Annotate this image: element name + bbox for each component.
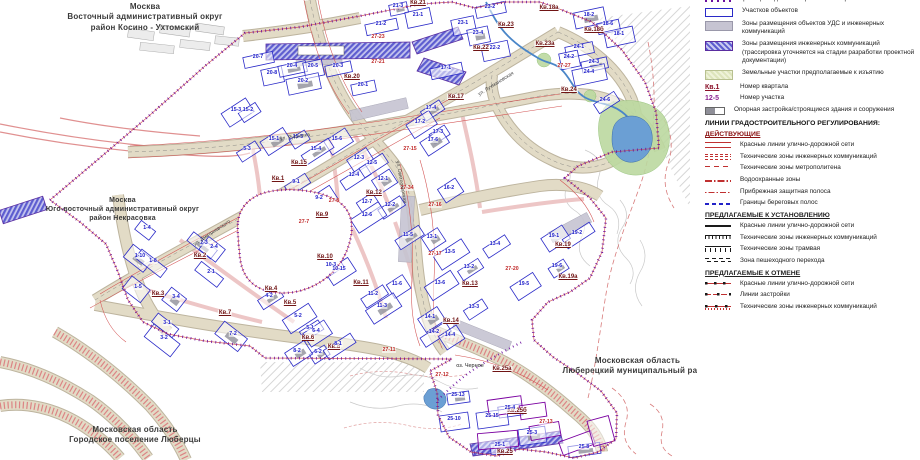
parcel-label: 12-2 [384, 202, 395, 208]
parcel-label: 8-1 [334, 341, 343, 347]
legend-item: Технические зоны инженерных коммуникаций [705, 153, 916, 162]
legend-swatch [705, 154, 731, 160]
parcel-label: 21-3 [392, 3, 403, 9]
legend-swatch [705, 235, 731, 241]
street-label: ул. Лухмановская [477, 71, 515, 98]
legend: Границы подготовки проекта планировки Уч… [697, 0, 920, 460]
legend-item-label: Границы подготовки проекта планировки [740, 0, 861, 4]
legend-section-title: ДЕЙСТВУЮЩИЕ [705, 131, 916, 138]
parcel-label: 25-15 [485, 413, 499, 419]
legend-item-label: Опорная застройка/строящиеся здания и со… [734, 106, 894, 115]
parcel-label: 14-2 [428, 329, 439, 335]
quarter-label: Кв.10 [316, 254, 334, 260]
quarter-label: Кв.22 [472, 45, 490, 51]
parcel-label: 13-5 [444, 249, 455, 255]
parcel-label: 7-2 [229, 331, 238, 337]
parcel-label: 15-2 [242, 107, 253, 113]
legend-item-label: Красные линии улично-дорожной сети [740, 141, 854, 150]
legend-swatch [705, 70, 733, 80]
legend-swatch [705, 225, 731, 227]
legend-section-active: ДЕЙСТВУЮЩИЕ Красные линии улично-дорожно… [705, 131, 916, 208]
quarter-label: Кв.17 [447, 94, 465, 100]
parcel-label: 27-17 [428, 251, 442, 257]
parcel-label: 11-2 [367, 291, 378, 297]
parcel-label: 27-27 [557, 63, 571, 69]
legend-item-label: Зоны размещения объектов УДС и инженерны… [742, 20, 916, 37]
legend-item: Красные линии улично-дорожной сети [705, 280, 916, 289]
parcel-label: 5-2 [294, 313, 303, 319]
parcel-label: 23-2 [484, 4, 495, 10]
parcel-label: 20-8 [266, 70, 277, 76]
parcel-label: 1-10 [134, 253, 145, 259]
parcel-label: 25-8 [578, 444, 589, 450]
legend-item: Красные линии улично-дорожной сети [705, 141, 916, 150]
parcel-label: 27-12 [435, 372, 449, 378]
legend-item: Участков объектов [705, 7, 916, 17]
parcel-label: 10-15 [332, 266, 346, 272]
quarter-label: Кв.25 [496, 449, 514, 455]
parcel-label: 6-2 [314, 349, 323, 355]
legend-item: Водоохранные зоны [705, 176, 916, 185]
legend-section-cancel: ПРЕДЛАГАЕМЫЕ К ОТМЕНЕ Красные линии улич… [705, 270, 916, 312]
parcel-label: 24-4 [583, 69, 594, 75]
parcel-label: 24-1 [573, 44, 584, 50]
legend-swatch: 12-5 [705, 95, 731, 102]
parcel-label: 27-7 [298, 219, 309, 225]
parcel-label: 20-2 [297, 78, 308, 84]
parcel-label: 27-21 [371, 59, 385, 65]
parcel-label: 18-2 [583, 12, 594, 18]
street-label: ул. Рудневка [280, 132, 310, 142]
parcel-label: 15-6 [331, 136, 342, 142]
parcel-label: 16-2 [443, 185, 454, 191]
parcel-label: 13-3 [468, 304, 479, 310]
parcel-label: 3-2 [160, 335, 169, 341]
parcel-label: 20-5 [307, 63, 318, 69]
map-labels: Москва Восточный административный округ … [0, 0, 700, 460]
parcel-label: 13-6 [434, 280, 445, 286]
parcel-label: 27-23 [371, 34, 385, 40]
legend-item-label: Зона пешеходного перехода [740, 257, 825, 266]
legend-section-proposed: ПРЕДЛАГАЕМЫЕ К УСТАНОВЛЕНИЮ Красные лини… [705, 212, 916, 266]
parcel-label: 17-3 [432, 129, 443, 135]
quarter-label: Кв.23а [534, 41, 555, 47]
parcel-label: 1-5 [134, 284, 143, 290]
parcel-label: 27-16 [428, 202, 442, 208]
quarter-label: Кв.18а [538, 5, 559, 11]
parcel-label: 17-6 [427, 137, 438, 143]
quarter-label: Кв.13 [461, 281, 479, 287]
street-label: ул. Святоозерская [394, 160, 407, 203]
parcel-label: 25-3 [526, 430, 537, 436]
parcel-label: 17-1 [440, 65, 451, 71]
quarter-label: Кв.21 [409, 0, 427, 6]
quarter-label: Кв.14 [442, 318, 460, 324]
parcel-label: 15-1 [268, 136, 279, 142]
parcel-label: 9-2 [315, 195, 324, 201]
parcel-label: 5-3 [243, 146, 252, 152]
region-label-moscow-east: Москва Восточный административный округ … [25, 2, 265, 33]
quarter-label: Кв.4 [264, 286, 278, 292]
parcel-label: 4-2 [265, 293, 274, 299]
parcel-label: 27-15 [403, 146, 417, 152]
parcel-label: 15-3 [230, 107, 241, 113]
parcel-label: 27-13 [539, 419, 553, 425]
parcel-label: 12-3 [353, 155, 364, 161]
legend-top-items: Границы подготовки проекта планировки Уч… [705, 0, 916, 115]
parcel-label: 12-1 [377, 176, 388, 182]
parcel-label: 21-1 [412, 12, 423, 18]
legend-item-label: Участков объектов [742, 7, 798, 16]
parcel-label: 27-8 [328, 198, 339, 204]
quarter-label: Кв.15 [290, 160, 308, 166]
quarter-label: Кв.19 [554, 242, 572, 248]
parcel-label: 20-3 [332, 63, 343, 69]
planning-map-page: Москва Восточный административный округ … [0, 0, 920, 460]
legend-item: Технические зоны инженерных коммуникаций [705, 303, 916, 312]
quarter-label: Кв.12 [365, 190, 383, 196]
parcel-label: 11-6 [391, 281, 402, 287]
parcel-label: 18-1 [613, 31, 624, 37]
legend-swatch [705, 41, 733, 51]
parcel-label: 25-13 [451, 392, 465, 398]
quarter-label: Кв.23 [497, 22, 515, 28]
quarter-label: Кв.19а [557, 274, 578, 280]
region-label-moscow-southeast: Москва Юго-восточный административный ок… [30, 196, 215, 223]
parcel-label: 2-4 [210, 244, 219, 250]
quarter-label: Кв.11 [352, 280, 369, 286]
parcel-label: 9-1 [292, 179, 301, 185]
parcel-label: 22-2 [489, 45, 500, 51]
legend-swatch [705, 180, 731, 182]
parcel-label: 19-2 [571, 230, 582, 236]
legend-item-label: Красные линии улично-дорожной сети [740, 280, 854, 289]
legend-item: Красные линии улично-дорожной сети [705, 222, 916, 231]
quarter-label: Кв.6 [301, 335, 315, 341]
parcel-label: 8-2 [293, 348, 302, 354]
quarter-label: Кв.24 [560, 87, 578, 93]
parcel-label: 3-1 [163, 320, 172, 326]
legend-item: Технические зоны трамвая [705, 245, 916, 254]
parcel-label: 25-10 [447, 416, 461, 422]
parcel-label: 21-2 [375, 21, 386, 27]
parcel-label: 19-5 [518, 281, 529, 287]
parcel-label: 14-4 [444, 332, 455, 338]
legend-item: Границы береговых полос [705, 199, 916, 208]
legend-swatch [705, 8, 733, 17]
parcel-label: 1-4 [143, 225, 152, 231]
parcel-label: 17-2 [414, 119, 425, 125]
parcel-label: 17-4 [425, 105, 436, 111]
legend-item: Кв.1 Номер квартала [705, 83, 916, 92]
parcel-label: 12-6 [361, 212, 372, 218]
quarter-label: Кв.25а [491, 366, 512, 372]
legend-item: Технические зоны инженерных коммуникаций [705, 234, 916, 243]
parcel-label: 15-4 [310, 146, 321, 152]
legend-swatch [705, 192, 731, 194]
legend-item-label: Границы береговых полос [740, 199, 818, 208]
legend-swatch [705, 281, 731, 286]
legend-item-label: Водоохранные зоны [740, 176, 800, 185]
parcel-label: 20-1 [357, 82, 368, 88]
parcel-label: 20-7 [252, 54, 263, 60]
quarter-label: Кв.7 [218, 310, 232, 316]
legend-swatch [705, 203, 731, 205]
legend-item: Опорная застройка/строящиеся здания и со… [705, 106, 916, 115]
legend-item: Технические зоны метрополитена [705, 164, 916, 173]
legend-swatch [705, 142, 731, 148]
legend-item-label: Номер квартала [740, 83, 788, 92]
parcel-label: 12-7 [361, 199, 372, 205]
parcel-label: 25-4 [504, 405, 515, 411]
parcel-label: 25-1 [494, 442, 505, 448]
parcel-label: 24-2 [563, 54, 574, 60]
quarter-label: Кв.2 [193, 253, 207, 259]
legend-swatch [705, 304, 731, 310]
parcel-label: 27-11 [382, 347, 396, 353]
legend-item: Зоны размещения инженерных коммуникаций … [705, 40, 916, 66]
legend-swatch [705, 258, 731, 263]
quarter-label: Кв.3 [151, 291, 165, 297]
parcel-label: 3-4 [172, 294, 181, 300]
legend-item-label: Красные линии улично-дорожной сети [740, 222, 854, 231]
parcel-label: 6-4 [312, 328, 321, 334]
parcel-label: 24-3 [588, 59, 599, 65]
parcel-label: 27-20 [505, 266, 519, 272]
parcel-label: 1-8 [149, 258, 158, 264]
legend-section-title: ПРЕДЛАГАЕМЫЕ К ОТМЕНЕ [705, 270, 916, 277]
legend-item-label: Технические зоны инженерных коммуникаций [740, 234, 877, 243]
legend-item: Земельные участки предполагаемые к изъят… [705, 69, 916, 80]
parcel-label: 11-3 [376, 303, 387, 309]
parcel-label: 13-2 [463, 264, 474, 270]
parcel-label: 12-4 [348, 172, 359, 178]
legend-swatch [705, 165, 731, 168]
legend-item-label: Линии застройки [740, 291, 790, 300]
legend-item: Прибрежная защитная полоса [705, 188, 916, 197]
legend-swatch [705, 107, 725, 115]
parcel-label: 2-1 [207, 269, 216, 275]
legend-item-label: Технические зоны метрополитена [740, 164, 841, 173]
legend-item-label: Прибрежная защитная полоса [740, 188, 831, 197]
legend-item: 12-5 Номер участка [705, 94, 916, 103]
legend-swatch [705, 0, 731, 2]
legend-swatch [705, 246, 731, 253]
legend-item-label: Земельные участки предполагаемые к изъят… [742, 69, 884, 78]
legend-item: Зона пешеходного перехода [705, 257, 916, 266]
parcel-label: 11-5 [402, 232, 413, 238]
parcel-label: 13-1 [426, 234, 437, 240]
legend-item: Границы подготовки проекта планировки [705, 0, 916, 4]
legend-item-label: Номер участка [740, 94, 784, 103]
legend-swatch [705, 21, 733, 31]
legend-swatch [705, 292, 731, 297]
parcel-label: 19-6 [551, 263, 562, 269]
parcel-label: 23-1 [457, 20, 468, 26]
legend-item-label: Технические зоны инженерных коммуникаций [740, 153, 877, 162]
quarter-label: Кв.18б [583, 27, 604, 33]
parcel-label: 14-1 [424, 314, 435, 320]
legend-item: Линии застройки [705, 291, 916, 300]
parcel-label: 19-1 [548, 233, 559, 239]
legend-swatch: Кв.1 [705, 84, 731, 91]
quarter-label: Кв.5 [283, 300, 297, 306]
legend-item-label: Технические зоны инженерных коммуникаций [740, 303, 877, 312]
parcel-label: 20-4 [286, 63, 297, 69]
parcel-label: 13-4 [489, 241, 500, 247]
legend-item-label: Технические зоны трамвая [740, 245, 820, 254]
legend-item: Зоны размещения объектов УДС и инженерны… [705, 20, 916, 37]
legend-lines-header: ЛИНИИ ГРАДОСТРОИТЕЛЬНОГО РЕГУЛИРОВАНИЯ: [705, 120, 916, 127]
quarter-label: Кв.9 [315, 212, 329, 218]
parcel-label: 12-5 [366, 160, 377, 166]
legend-section-title: ПРЕДЛАГАЕМЫЕ К УСТАНОВЛЕНИЮ [705, 212, 916, 219]
parcel-label: 23-4 [472, 30, 483, 36]
quarter-label: Кв.20 [343, 74, 361, 80]
legend-item-label: Зоны размещения инженерных коммуникаций … [742, 40, 916, 66]
parcel-label: 18-6 [602, 21, 613, 27]
region-label-lyubertsy-city: Московская область Городское поселение Л… [40, 425, 230, 446]
lake-label: оз. Черное [456, 363, 484, 369]
quarter-label: Кв.1 [271, 176, 285, 182]
parcel-label: 24-6 [599, 97, 610, 103]
